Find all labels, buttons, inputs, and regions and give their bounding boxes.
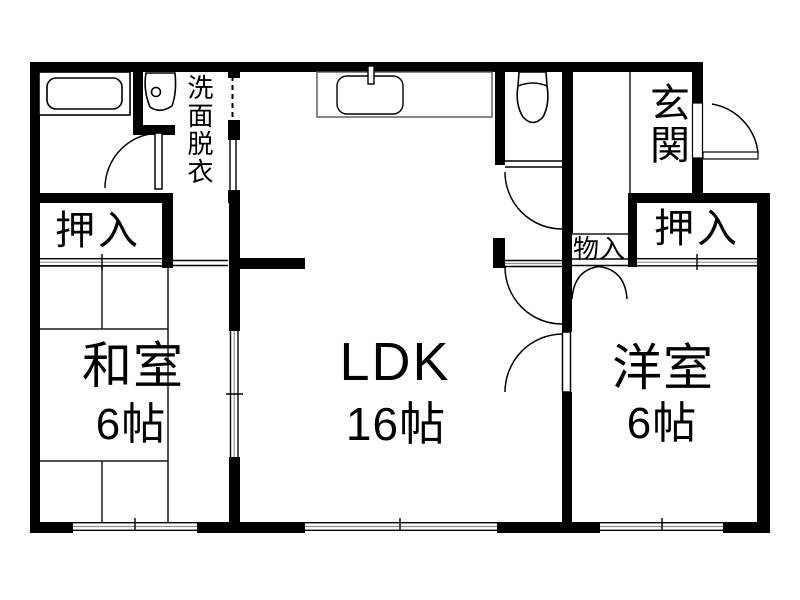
washitsu-ldk-fusuma-icon [226,331,243,457]
hall-ldk-door-threshold [505,261,562,267]
toilet-icon [517,72,548,123]
washbasin-icon [145,73,175,110]
bathroom-door-icon [105,133,162,189]
tatami-grid [40,266,172,522]
wall-washroom-right-1 [228,62,240,78]
room-label-senmen-datsui: 洗面脱衣 [186,74,212,186]
wall-post-ldk [493,238,505,268]
youshitsu-door-icon [505,332,571,392]
wall-right [757,193,770,533]
entrance-door-icon [693,103,759,159]
floorplan: LDK 16帖 和室 6帖 洋室 6帖 玄関 洗面脱衣 押入 押入 物入 [0,0,800,600]
wall-washroom-right-2 [228,120,240,140]
wall-toilet-right-hall [562,62,573,233]
wall-oshiire-right-left [628,193,637,267]
washitsu-window-icon [73,518,197,531]
kitchen-counter-icon [317,66,492,117]
monoire-bifold-door-icon [572,267,627,300]
wall-oshiire-left-right [162,193,173,268]
room-size-youshitsu: 6帖 [627,402,697,446]
wall-toilet-left [495,62,505,165]
wall-left [30,62,40,533]
room-size-washitsu: 6帖 [96,403,166,447]
ldk-window-icon [305,518,497,531]
wall-washitsu-ldk-lower [229,457,240,522]
washroom-opening-icon [230,138,236,192]
wall-youshitsu-left-upper [562,233,572,332]
wall-bottom-3 [497,522,600,533]
toilet-door-icon [505,172,562,229]
wall-washitsu-ldk-upper [229,192,240,331]
oshiire-right-sliding-door-icon [637,254,757,270]
room-label-youshitsu: 洋室 [612,343,714,393]
oshiire-left-sliding-door-icon [40,254,163,270]
room-label-oshiire-right: 押入 [654,209,740,249]
wall-oshiire-right-top [628,193,770,203]
wall-bath-divider [133,72,143,133]
wall-genkan-right-upper [692,62,703,103]
wall-bottom-1 [30,522,73,533]
room-label-genkan: 玄関 [646,82,686,166]
room-size-ldk: 16帖 [346,401,446,447]
wall-youshitsu-left-lower [562,392,572,522]
wall-genkan-right-lower [692,158,703,197]
corridor-washitsu-door-icon [172,261,228,266]
room-label-oshiire-left: 押入 [55,211,141,251]
wall-oshiire-left-top [30,193,173,203]
youshitsu-window-icon [600,518,723,531]
wall-top [30,62,703,72]
room-label-ldk: LDK [339,335,450,389]
room-label-washitsu: 和室 [82,341,184,391]
toilet-door-threshold [505,161,562,167]
room-label-monoire: 物入 [573,236,625,262]
wall-kitchen-stub [240,258,305,269]
bathtub-icon [39,72,130,115]
kitchen-faucet-icon [368,66,374,84]
wall-bottom-2 [197,522,305,533]
hall-door-icon [505,267,562,324]
